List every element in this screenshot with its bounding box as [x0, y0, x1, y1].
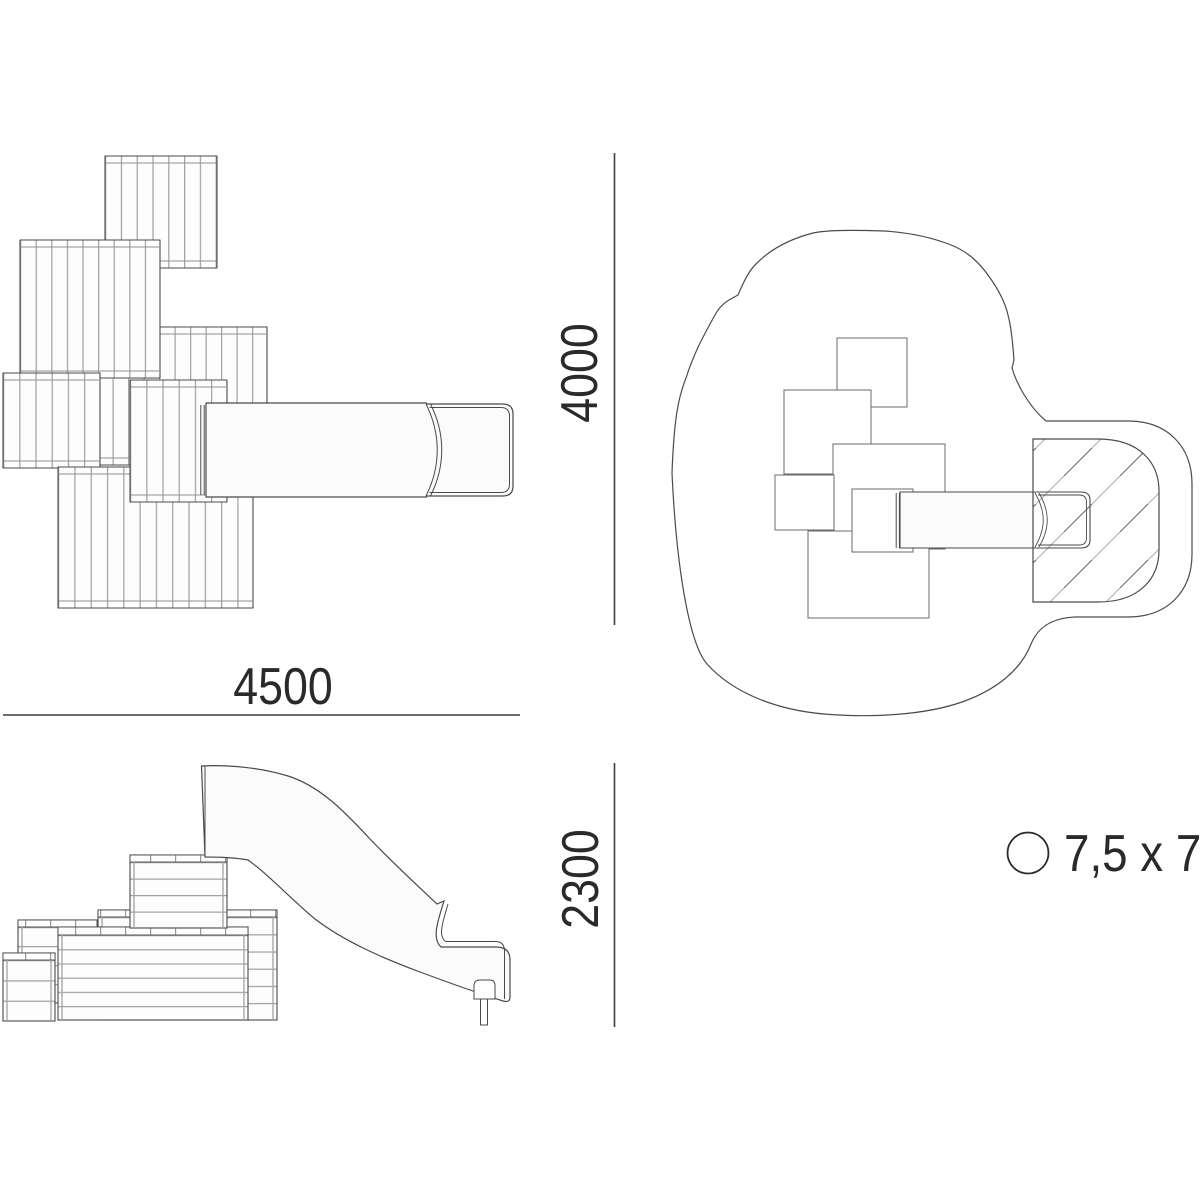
plan-slat-block-left-small — [3, 373, 100, 468]
dimension-value-elevation-height: 2300 — [552, 829, 610, 928]
drawing-canvas: 4000 4500 2300 7,5 x 7 — [0, 0, 1200, 1200]
dimension-value-plan-depth: 4000 — [551, 323, 609, 422]
safety-area-size-label: 7,5 x 7 — [1064, 825, 1200, 882]
block-outline — [775, 475, 834, 530]
side-elevation-view — [3, 766, 510, 1025]
dimension-value-plan-width: 4500 — [233, 658, 332, 716]
side-block-top — [130, 855, 227, 928]
side-block-main — [58, 927, 248, 1020]
slide-ground-post — [481, 999, 488, 1025]
plan-view — [3, 156, 513, 608]
slide-foot — [474, 980, 495, 999]
side-block-leftmost — [3, 953, 55, 1021]
slide-safety-plan — [896, 492, 1036, 548]
dimension-plan-depth: 4000 — [551, 153, 615, 625]
dimension-elevation-height: 2300 — [552, 763, 615, 1027]
circle-marker-icon — [1008, 833, 1049, 874]
safety-area-view — [672, 230, 1192, 715]
slide-landing-hatch — [1033, 439, 1159, 602]
dimension-plan-width: 4500 — [3, 658, 520, 716]
technical-drawing-sheet: 4000 4500 2300 7,5 x 7 — [0, 0, 1200, 1200]
plan-slat-block-left — [20, 240, 160, 378]
safety-area-legend: 7,5 x 7 — [1008, 825, 1200, 882]
slide-plan-view — [201, 403, 513, 497]
